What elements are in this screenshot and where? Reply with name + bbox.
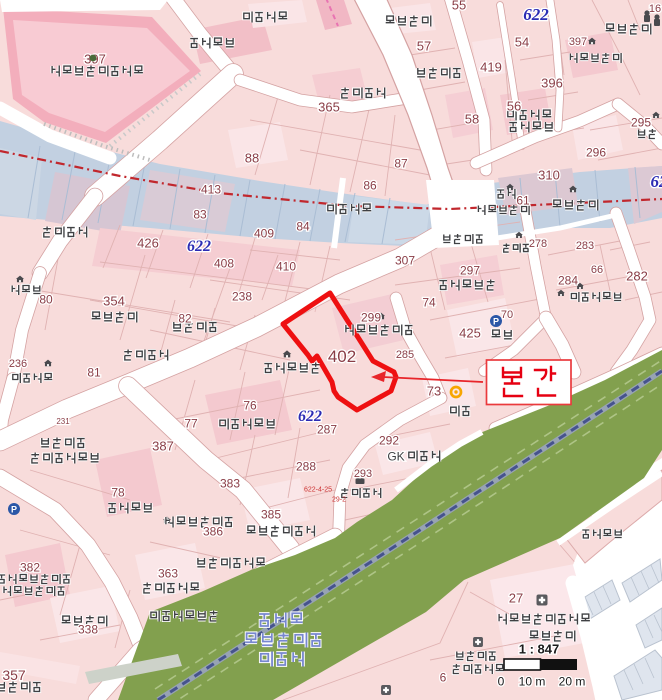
svg-text:70: 70 xyxy=(501,309,513,321)
svg-text:10 m: 10 m xyxy=(519,674,546,688)
svg-text:385: 385 xyxy=(261,507,281,521)
svg-text:622-4-25: 622-4-25 xyxy=(304,487,332,494)
svg-text:56: 56 xyxy=(507,99,521,114)
svg-text:425: 425 xyxy=(459,326,481,341)
svg-text:295: 295 xyxy=(631,115,651,129)
svg-text:87: 87 xyxy=(394,156,408,170)
svg-text:383: 383 xyxy=(220,476,240,490)
svg-text:297: 297 xyxy=(460,263,480,277)
svg-text:20 m: 20 m xyxy=(559,674,586,688)
svg-text:78: 78 xyxy=(111,485,125,499)
svg-text:54: 54 xyxy=(515,35,529,50)
svg-text:285: 285 xyxy=(396,349,414,361)
svg-text:402: 402 xyxy=(328,347,356,366)
svg-text:55: 55 xyxy=(452,0,466,13)
svg-text:236: 236 xyxy=(9,358,27,370)
svg-text:P: P xyxy=(11,504,17,514)
svg-text:396: 396 xyxy=(541,76,563,91)
svg-text:408: 408 xyxy=(214,256,234,270)
svg-text:387: 387 xyxy=(152,439,174,454)
svg-text:6: 6 xyxy=(440,670,447,684)
svg-text:62: 62 xyxy=(651,172,662,191)
svg-text:GK: GK xyxy=(387,449,404,463)
svg-text:307: 307 xyxy=(395,253,415,267)
svg-text:622: 622 xyxy=(523,5,549,24)
svg-text:382: 382 xyxy=(20,560,40,574)
svg-text:16: 16 xyxy=(649,3,661,15)
svg-text:231: 231 xyxy=(56,417,70,426)
svg-text:357: 357 xyxy=(2,667,26,683)
svg-text:82: 82 xyxy=(178,311,192,325)
svg-text:409: 409 xyxy=(254,226,274,240)
svg-text:365: 365 xyxy=(318,100,340,115)
svg-text:77: 77 xyxy=(184,416,198,430)
svg-text:299: 299 xyxy=(361,310,381,324)
svg-text:86: 86 xyxy=(363,178,377,192)
svg-text:1 : 847: 1 : 847 xyxy=(519,642,559,657)
svg-text:397: 397 xyxy=(569,36,587,48)
svg-text:81: 81 xyxy=(87,365,101,379)
svg-text:238: 238 xyxy=(232,289,252,303)
svg-text:338: 338 xyxy=(78,622,98,636)
svg-text:P: P xyxy=(493,316,499,326)
svg-text:84: 84 xyxy=(296,219,310,233)
svg-text:0: 0 xyxy=(498,674,505,688)
svg-text:419: 419 xyxy=(480,60,502,75)
svg-text:83: 83 xyxy=(193,207,207,221)
svg-text:292: 292 xyxy=(379,433,399,447)
svg-text:61: 61 xyxy=(516,193,530,207)
svg-text:88: 88 xyxy=(245,151,259,166)
svg-text:284: 284 xyxy=(558,273,578,287)
svg-text:296: 296 xyxy=(586,145,606,159)
svg-text:386: 386 xyxy=(203,524,223,538)
svg-text:354: 354 xyxy=(103,294,125,309)
svg-text:363: 363 xyxy=(158,566,178,580)
svg-text:73: 73 xyxy=(427,384,441,399)
svg-text:622: 622 xyxy=(298,408,322,425)
svg-text:57: 57 xyxy=(417,39,431,54)
svg-text:622: 622 xyxy=(187,238,211,255)
svg-text:66: 66 xyxy=(591,264,603,276)
svg-text:413: 413 xyxy=(201,182,221,196)
svg-text:76: 76 xyxy=(243,398,257,412)
svg-text:282: 282 xyxy=(626,269,648,284)
svg-text:288: 288 xyxy=(296,459,316,473)
svg-text:278: 278 xyxy=(529,238,547,250)
svg-text:426: 426 xyxy=(137,236,159,251)
svg-text:58: 58 xyxy=(465,112,479,127)
svg-text:310: 310 xyxy=(538,168,560,183)
svg-text:27: 27 xyxy=(509,591,523,606)
svg-text:74: 74 xyxy=(422,295,436,309)
svg-text:410: 410 xyxy=(276,259,296,273)
svg-text:293: 293 xyxy=(354,468,372,480)
svg-text:29-2: 29-2 xyxy=(332,497,346,504)
svg-text:80: 80 xyxy=(39,292,53,306)
svg-text:283: 283 xyxy=(576,240,594,252)
